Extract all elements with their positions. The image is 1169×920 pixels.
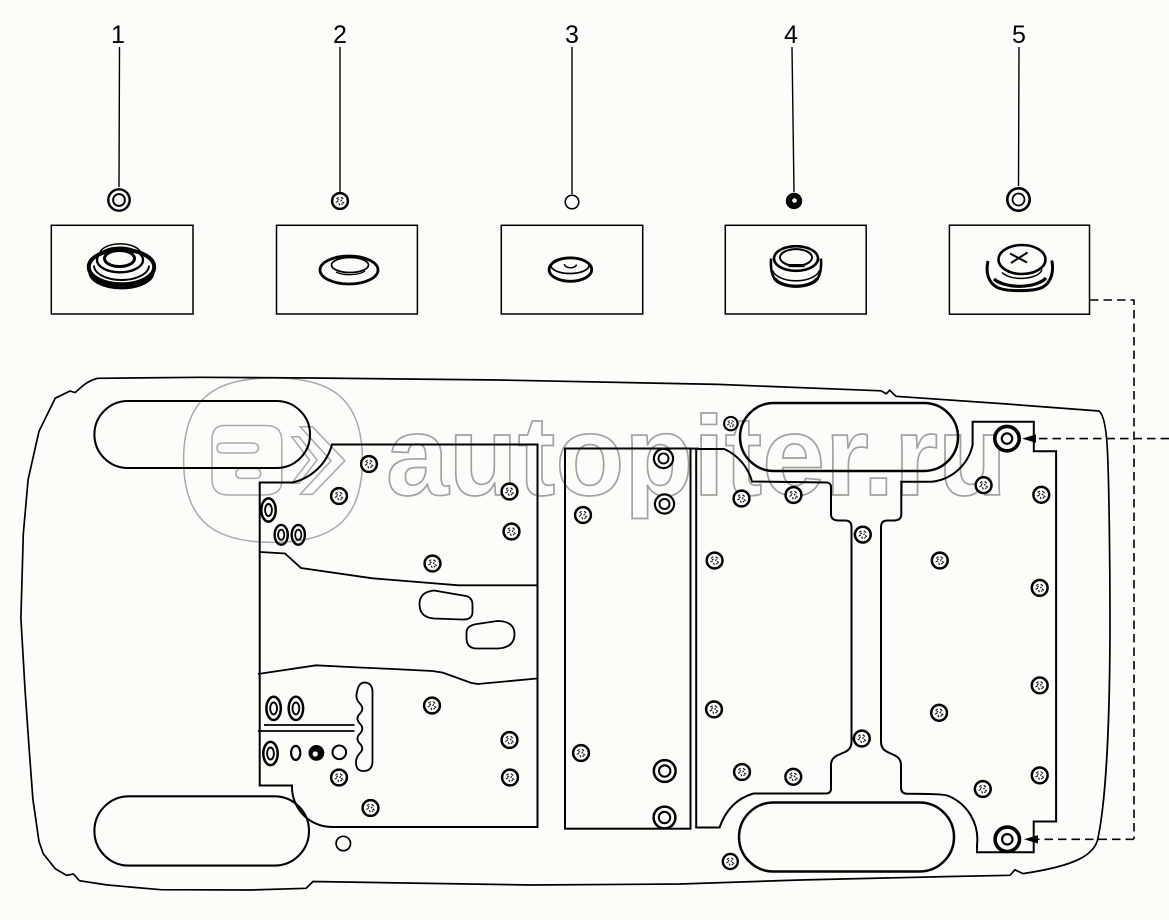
svg-text:2: 2 (333, 21, 347, 49)
svg-text:3: 3 (565, 21, 579, 49)
svg-text:4: 4 (784, 21, 798, 49)
svg-text:1: 1 (111, 21, 125, 49)
svg-text:5: 5 (1012, 21, 1026, 49)
